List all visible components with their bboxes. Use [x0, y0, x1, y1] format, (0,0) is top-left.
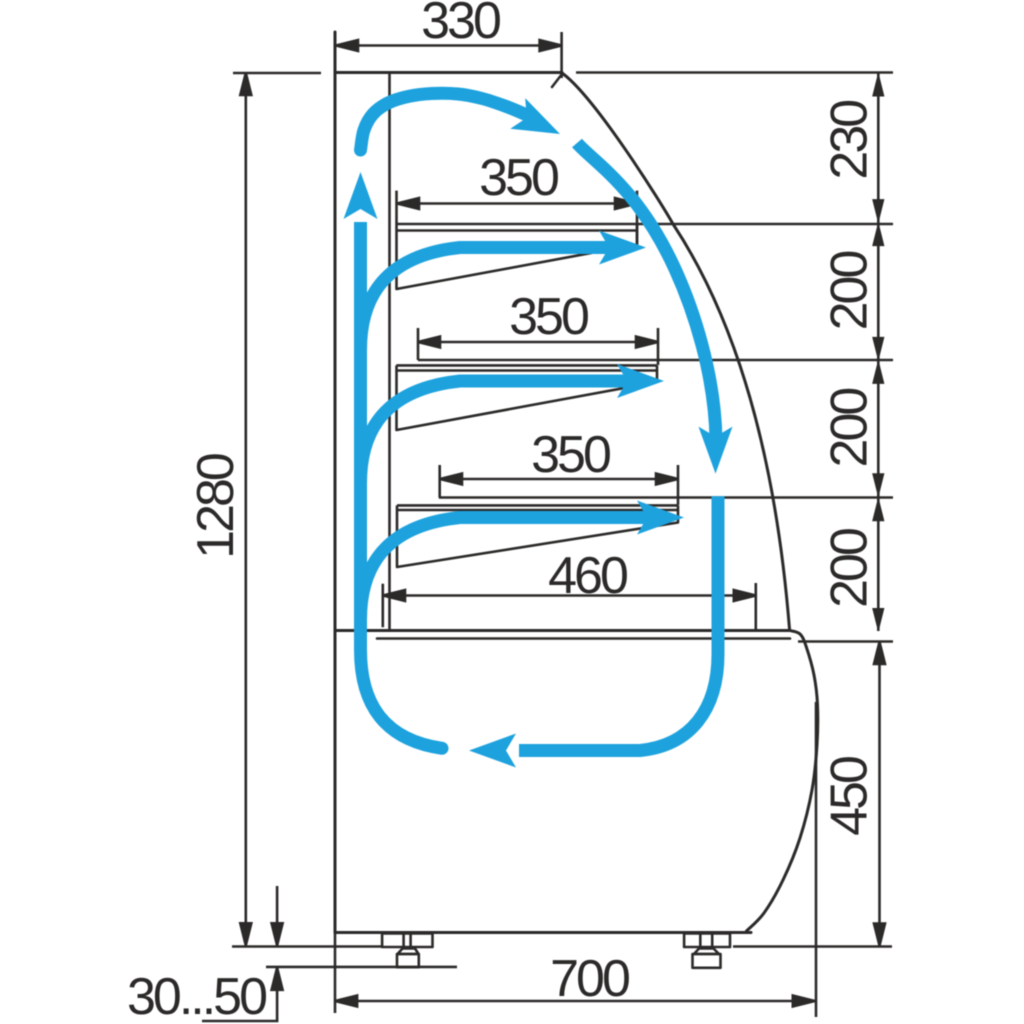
svg-text:30...50: 30...50: [127, 968, 266, 1024]
svg-text:230: 230: [821, 101, 879, 180]
svg-text:200: 200: [821, 529, 879, 608]
svg-text:700: 700: [550, 950, 629, 1008]
svg-text:450: 450: [821, 757, 879, 836]
svg-text:330: 330: [421, 0, 500, 50]
svg-text:350: 350: [509, 288, 588, 346]
svg-text:350: 350: [479, 149, 558, 207]
svg-text:200: 200: [821, 389, 879, 468]
svg-text:350: 350: [531, 426, 610, 484]
svg-text:200: 200: [821, 252, 879, 331]
svg-text:460: 460: [548, 547, 627, 605]
svg-text:1280: 1280: [187, 454, 245, 559]
